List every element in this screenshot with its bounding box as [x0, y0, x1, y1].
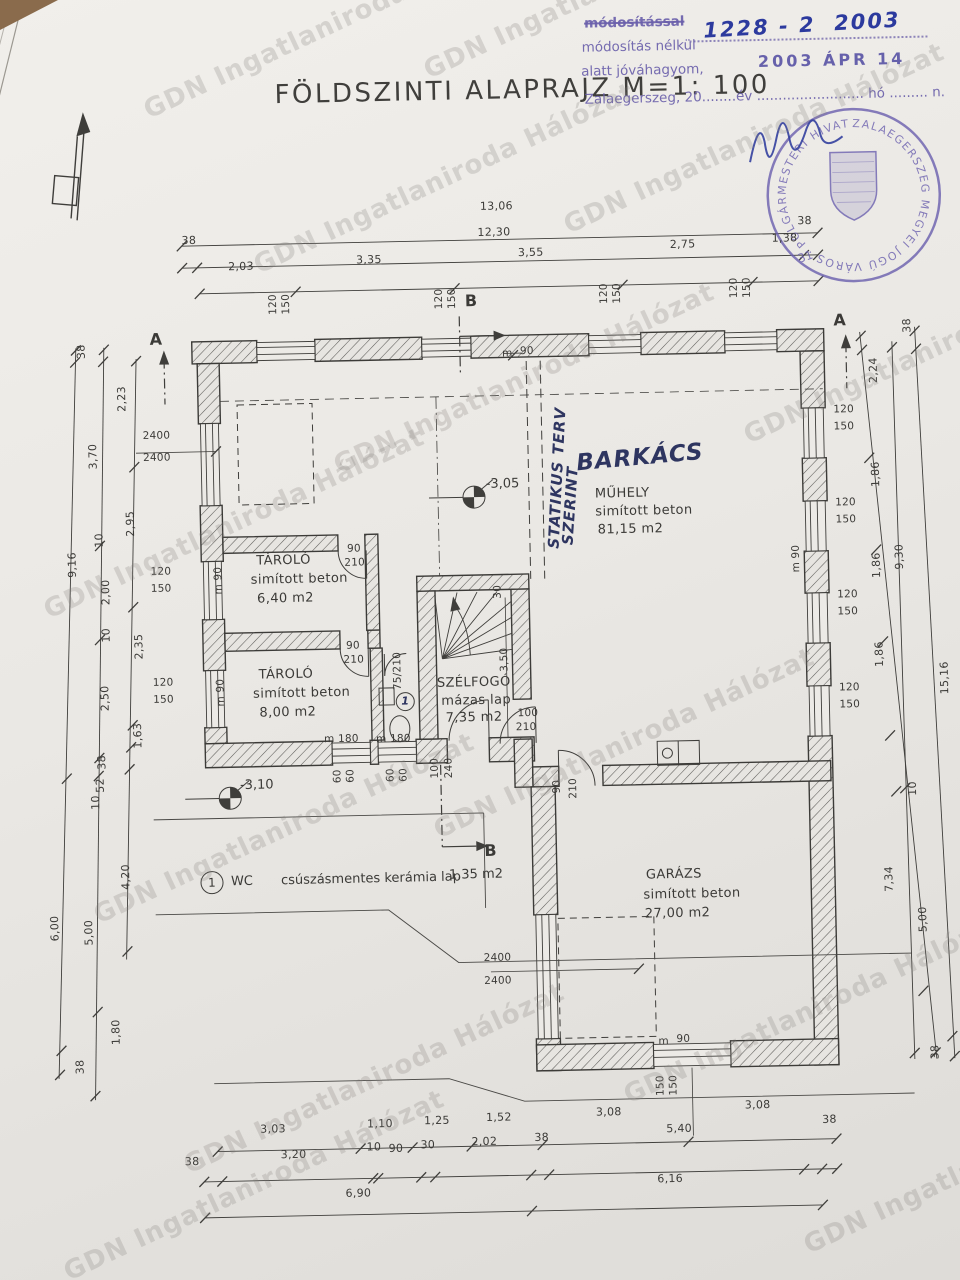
room-label: 81,15 m2: [598, 522, 664, 536]
dimension-label: 38: [822, 1114, 837, 1125]
dimension-label: 5,40: [666, 1123, 692, 1135]
dimension-label: 38: [181, 235, 196, 246]
opening-size-label: 150: [447, 288, 458, 309]
opening-size-label: 210: [516, 722, 537, 733]
opening-size-label: 120: [268, 294, 279, 315]
opening-size-label: 100: [517, 708, 538, 719]
dimension-label: 7,34: [883, 866, 895, 892]
dimension-label: 10: [93, 533, 104, 548]
room-label: TÁROLÓ: [256, 554, 311, 568]
dimension-label: 9,16: [66, 552, 78, 578]
section-letter: B: [484, 843, 497, 859]
section-letter: A: [833, 312, 846, 328]
opening-size-label: m 180: [376, 733, 411, 744]
legend-item: WC: [231, 875, 253, 888]
room-label: mázas lap: [441, 693, 511, 707]
dimension-label: 1,80: [110, 1019, 122, 1045]
room-label: simított beton: [643, 887, 740, 902]
dimension-label: 13,06: [480, 200, 513, 212]
dimension-label: 38: [534, 1132, 549, 1143]
opening-size-label: 210: [343, 654, 364, 665]
dimension-label: 3,08: [596, 1106, 622, 1118]
opening-size-label: 30: [492, 585, 503, 599]
opening-size-label: 150: [742, 277, 753, 298]
opening-size-label: m: [502, 348, 513, 359]
dimension-label: 38: [76, 344, 87, 359]
dimension-label: 30: [420, 1139, 435, 1150]
dimension-label: 1,52: [486, 1111, 512, 1123]
room-label: SZÉLFOGÓ: [437, 675, 511, 690]
dimension-label: 10: [907, 781, 918, 796]
room-label: simított beton: [253, 686, 350, 701]
section-letter: A: [149, 332, 162, 348]
dimension-label: 10: [100, 628, 111, 643]
dimension-label: 6,16: [657, 1173, 683, 1185]
room-label: MŰHELY: [595, 486, 650, 500]
handwritten-note: 1: [401, 695, 410, 706]
dimension-label: 3,35: [356, 254, 382, 266]
dimension-label: 2,03: [228, 261, 254, 273]
opening-size-label: 150: [837, 606, 858, 617]
opening-size-label: 150: [151, 583, 172, 594]
opening-size-label: m: [658, 1036, 669, 1047]
opening-size-label: 210: [344, 557, 365, 568]
opening-size-label: 120: [837, 589, 858, 600]
dimension-label: 2,75: [670, 238, 696, 250]
opening-size-label: 2400: [484, 952, 512, 963]
opening-size-label: 120: [599, 283, 610, 304]
opening-size-label: 120: [729, 277, 740, 298]
dimension-label: 38: [929, 1045, 940, 1060]
approval-line-3: alatt jóváhagyom,: [581, 61, 704, 80]
scanned-floor-plan-page: FÖLDSZINTI ALAPRAJZ M=1: 100 módosítássa…: [0, 0, 960, 1280]
opening-size-label: 2400: [143, 452, 171, 463]
approval-line-2: módosítás nélkül: [581, 37, 696, 55]
dimension-label: 38: [75, 1060, 86, 1075]
opening-size-label: 150: [612, 283, 623, 304]
opening-size-label: 75/210: [392, 652, 403, 690]
legend-item: csúszásmentes kerámia lap: [281, 870, 461, 887]
room-label: GARÁZS: [646, 867, 702, 881]
dimension-label: 38: [96, 755, 107, 770]
opening-size-label: 120: [434, 289, 445, 310]
opening-size-label: 90: [520, 346, 534, 357]
opening-size-label: m 180: [324, 734, 359, 745]
opening-size-label: 120: [835, 497, 856, 508]
dimension-label: 90: [389, 1143, 404, 1154]
legend-item: 1,35 m2: [449, 868, 503, 882]
opening-size-label: 2400: [143, 430, 171, 441]
dimension-label: 2,50: [99, 685, 111, 711]
paper-crease-lines: [0, 9, 23, 136]
opening-size-label: 60: [332, 769, 343, 783]
north-arrow-icon: [50, 112, 92, 221]
opening-size-label: 90: [346, 641, 360, 652]
level-value: -3,10: [240, 778, 274, 792]
dimension-label: 2,35: [133, 634, 145, 660]
room-label: simított beton: [251, 572, 348, 587]
dimension-label: 5,00: [83, 920, 95, 946]
section-letter: B: [465, 293, 478, 309]
room-label: 7,35 m2: [445, 711, 502, 725]
opening-size-label: 120: [839, 682, 860, 693]
dimension-label: 10: [90, 795, 101, 810]
dimension-label: 1,86: [871, 552, 883, 578]
opening-size-label: 150: [281, 294, 292, 315]
dimension-label: 1,63: [132, 723, 144, 749]
room-label: 6,40 m2: [257, 591, 314, 605]
opening-size-label: 3,50: [499, 648, 510, 672]
room-label: simított beton: [595, 504, 692, 519]
room-label: 27,00 m2: [645, 906, 711, 920]
approval-line-crossed: módosítással: [584, 14, 685, 32]
opening-size-label: 150: [834, 421, 855, 432]
room-label: 8,00 m2: [259, 705, 316, 719]
dimension-label: 3,70: [87, 444, 99, 470]
dimension-label: 5,00: [917, 906, 929, 932]
dimension-label: 15,16: [939, 661, 951, 694]
opening-size-label: 150: [153, 694, 174, 705]
dimension-label: 2,02: [471, 1136, 497, 1148]
drawing-sheet: FÖLDSZINTI ALAPRAJZ M=1: 100 módosítássa…: [0, 0, 960, 1280]
dimension-label: 38: [797, 215, 812, 226]
dimension-label: 3,55: [518, 247, 544, 259]
dimension-label: 1,86: [873, 641, 885, 667]
dimension-label: 2,95: [125, 511, 137, 537]
opening-size-label: 150: [839, 699, 860, 710]
dimension-label: 52: [95, 778, 106, 793]
dimension-label: 9,30: [893, 544, 905, 570]
dimension-label: 2,23: [116, 386, 128, 412]
dimension-label: 3,08: [745, 1099, 771, 1111]
dimension-label: 6,00: [49, 916, 61, 942]
dimension-label: 1,86: [870, 461, 882, 487]
opening-size-label: m 90: [791, 545, 802, 573]
opening-size-label: 90: [347, 543, 361, 554]
opening-size-label: 90: [676, 1034, 690, 1045]
opening-size-label: m 90: [215, 679, 226, 707]
dimension-label: 38: [901, 318, 912, 333]
opening-size-label: m 90: [213, 567, 224, 595]
level-value: -3,05: [486, 477, 520, 491]
room-label: TÁROLÓ: [259, 668, 314, 682]
opening-size-label: 2400: [484, 975, 512, 986]
dimension-label: 12,30: [477, 226, 510, 238]
dimension-label: 6,90: [345, 1187, 371, 1199]
dimension-label: 1,38: [772, 232, 798, 244]
opening-size-label: 120: [153, 677, 174, 688]
opening-size-label: 150: [835, 514, 856, 525]
